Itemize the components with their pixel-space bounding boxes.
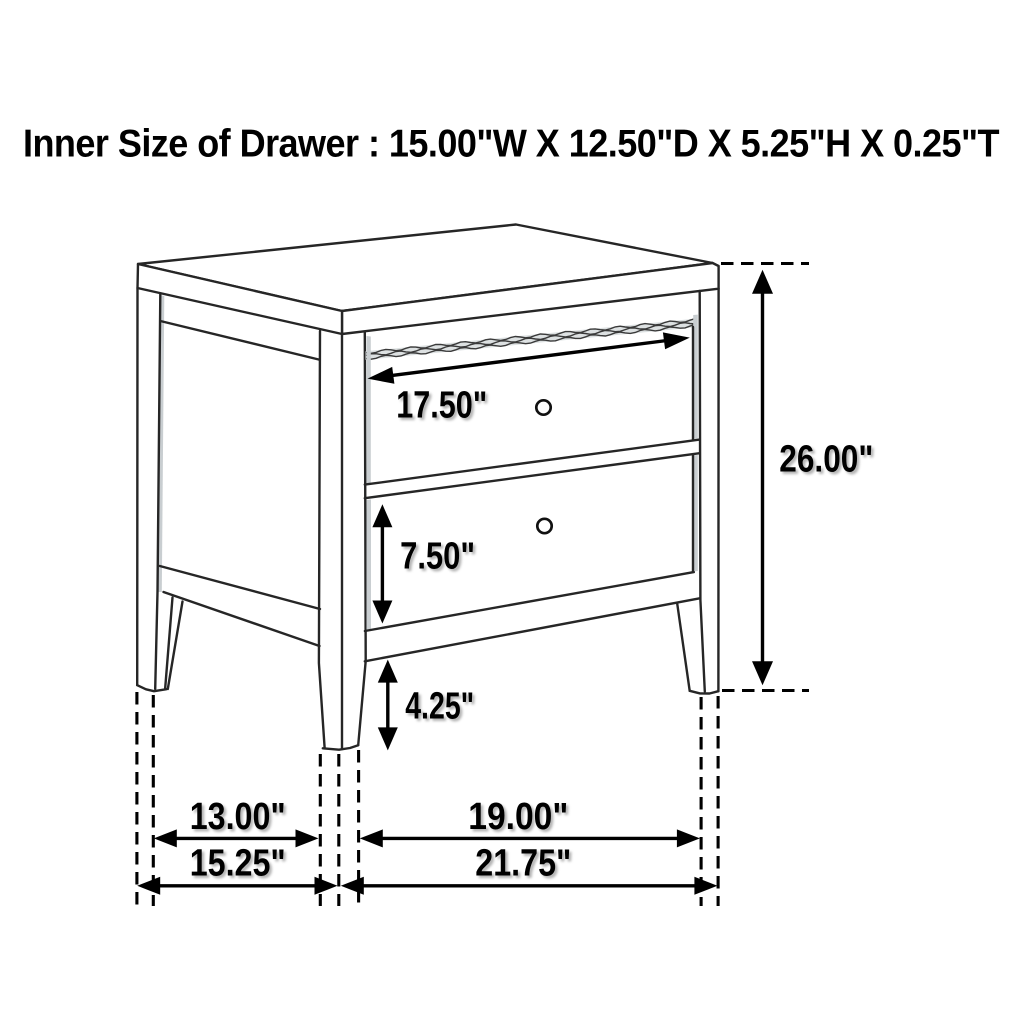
svg-text:17.50": 17.50" [396,385,487,427]
svg-text:7.50": 7.50" [400,536,475,578]
svg-text:21.75": 21.75" [475,842,571,884]
svg-text:15.25": 15.25" [190,842,286,884]
svg-text:19.00": 19.00" [468,796,568,838]
svg-text:13.00": 13.00" [190,796,286,838]
svg-text:Inner Size of Drawer : 15.00"W: Inner Size of Drawer : 15.00"W X 12.50"D… [23,123,1000,166]
svg-text:26.00": 26.00" [779,439,873,481]
svg-text:4.25": 4.25" [405,686,474,728]
